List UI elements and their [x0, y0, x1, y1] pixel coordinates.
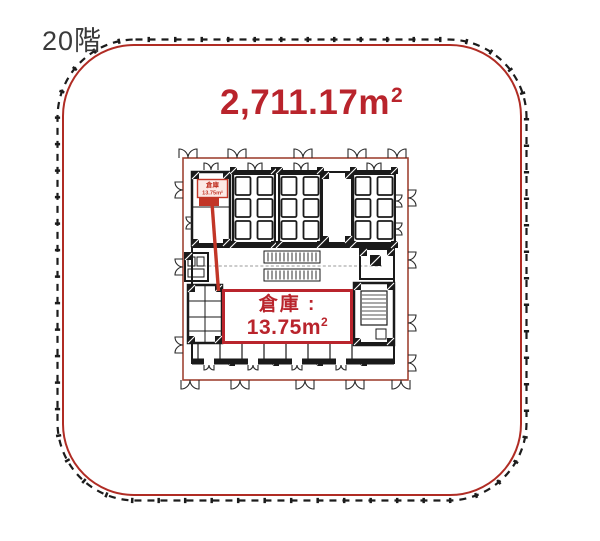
total-area-unit-sup: 2: [391, 84, 403, 107]
floor-plan-page: 倉庫 13.75m² 20階 2,711.17m2 倉庫 : 13.75m2: [0, 0, 600, 541]
warehouse-marker-title: 倉庫: [205, 180, 220, 189]
total-area-value: 2,711.17: [220, 83, 358, 122]
warehouse-room-highlight: [199, 197, 219, 206]
warehouse-callout-area: 13.75m2: [225, 317, 350, 338]
floor-number-label: 20階: [42, 19, 102, 58]
total-area-unit: m: [358, 83, 390, 122]
floor-plan: 倉庫 13.75m²: [175, 149, 416, 389]
warehouse-callout-box: 倉庫 : 13.75m2: [222, 289, 353, 344]
scene-canvas: 倉庫 13.75m²: [0, 0, 600, 541]
warehouse-marker-area: 13.75m²: [202, 190, 223, 197]
total-area-label: 2,711.17m2: [220, 83, 402, 123]
warehouse-callout-title: 倉庫 :: [225, 295, 350, 314]
